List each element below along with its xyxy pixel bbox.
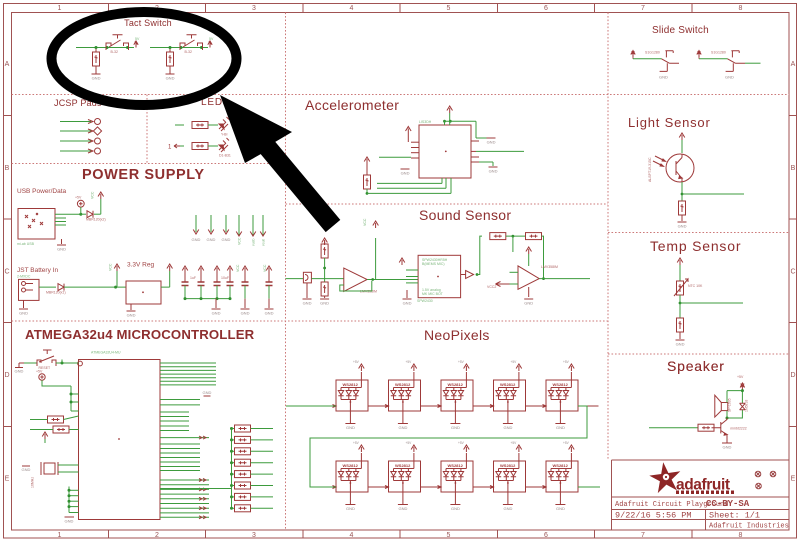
svg-text:vout: vout: [262, 239, 266, 246]
svg-text:Temp Sensor: Temp Sensor: [650, 238, 741, 254]
svg-text:Tact Switch: Tact Switch: [124, 18, 172, 28]
svg-text:A: A: [791, 61, 796, 68]
svg-text:E: E: [5, 476, 10, 483]
svg-text:B(MEMS MIC): B(MEMS MIC): [422, 262, 445, 266]
svg-text:Light Sensor: Light Sensor: [628, 115, 711, 130]
svg-text:8: 8: [739, 5, 743, 12]
svg-text:ALSPT19-315C: ALSPT19-315C: [648, 157, 652, 182]
svg-text:GND: GND: [723, 445, 732, 450]
svg-text:VCC2: VCC2: [487, 285, 496, 289]
svg-text:7: 7: [641, 532, 645, 539]
svg-text:S1G1280: S1G1280: [645, 51, 660, 55]
svg-text:Sheet: 1/1: Sheet: 1/1: [709, 511, 760, 521]
svg-text:4: 4: [350, 5, 354, 12]
svg-text:Speaker: Speaker: [667, 358, 725, 374]
svg-text:1: 1: [58, 5, 62, 12]
svg-text:4: 4: [350, 532, 354, 539]
svg-text:GND: GND: [65, 519, 74, 524]
svg-text:GND: GND: [15, 369, 24, 374]
svg-text:GND: GND: [222, 237, 231, 242]
svg-text:10uF: 10uF: [221, 276, 229, 280]
svg-text:MBR120(x2): MBR120(x2): [86, 218, 106, 222]
svg-text:NTC 10K: NTC 10K: [688, 284, 703, 288]
svg-text:VCC: VCC: [91, 191, 95, 199]
svg-text:5: 5: [447, 532, 451, 539]
svg-text:SPW2430: SPW2430: [417, 299, 433, 303]
svg-text:5: 5: [447, 5, 451, 12]
svg-text:MK MIC BOT: MK MIC BOT: [422, 292, 444, 296]
svg-text:6: 6: [544, 5, 548, 12]
svg-text:JST Battery In: JST Battery In: [17, 267, 58, 274]
svg-text:B: B: [5, 165, 10, 172]
svg-text:16MHz: 16MHz: [31, 477, 35, 488]
svg-text:1: 1: [58, 532, 62, 539]
svg-text:mi-ab USB: mi-ab USB: [17, 242, 35, 246]
svg-text:GND: GND: [192, 237, 201, 242]
svg-text:USB Power/Data: USB Power/Data: [17, 188, 67, 195]
svg-text:VCC: VCC: [363, 218, 367, 226]
svg-text:Adafruit Industries: Adafruit Industries: [709, 523, 789, 531]
svg-text:VCC: VCC: [236, 264, 240, 272]
svg-text:+5V: +5V: [36, 370, 43, 374]
svg-text:LMV358IM: LMV358IM: [541, 265, 558, 269]
svg-text:3: 3: [252, 532, 256, 539]
svg-text:E: E: [791, 476, 796, 483]
svg-text:GND: GND: [659, 75, 668, 80]
svg-text:POWER SUPPLY: POWER SUPPLY: [82, 167, 205, 183]
svg-text:2-MXDC: 2-MXDC: [17, 275, 31, 279]
svg-text:Y-BI: Y-BI: [221, 133, 228, 137]
svg-text:LIS3DH: LIS3DH: [419, 120, 432, 124]
svg-text:GND: GND: [22, 467, 31, 472]
svg-text:D1-B31: D1-B31: [219, 154, 231, 158]
svg-text:8: 8: [739, 532, 743, 539]
svg-text:2: 2: [155, 532, 159, 539]
svg-text:Sound Sensor: Sound Sensor: [419, 207, 511, 223]
svg-text:VCC: VCC: [263, 264, 267, 272]
svg-text:SP-1605: SP-1605: [728, 398, 732, 412]
svg-text:3.3V Reg: 3.3V Reg: [127, 262, 154, 269]
svg-text:1uF: 1uF: [190, 276, 196, 280]
svg-text:1N5818: 1N5818: [745, 400, 749, 412]
svg-text:A: A: [5, 61, 10, 68]
svg-text:+5V: +5V: [75, 196, 82, 200]
svg-text:GND: GND: [207, 237, 216, 242]
svg-text:5V: 5V: [135, 37, 140, 41]
svg-text:B-32: B-32: [111, 50, 118, 54]
svg-text:C: C: [790, 269, 795, 276]
svg-text:D: D: [4, 372, 9, 379]
svg-text:GND: GND: [725, 75, 734, 80]
svg-text:3: 3: [252, 5, 256, 12]
svg-text:ATMEGA32u4 MICROCONTROLLER: ATMEGA32u4 MICROCONTROLLER: [25, 327, 255, 342]
svg-text:C: C: [4, 269, 9, 276]
svg-text:B: B: [791, 165, 796, 172]
svg-text:Accelerometer: Accelerometer: [305, 97, 399, 113]
svg-text:GND: GND: [203, 390, 212, 395]
svg-text:VCC: VCC: [238, 237, 242, 245]
svg-text:vusb: vusb: [252, 239, 256, 246]
svg-text:D: D: [790, 372, 795, 379]
svg-text:VCC: VCC: [109, 263, 113, 271]
svg-text:Slide Switch: Slide Switch: [652, 25, 709, 36]
svg-text:6: 6: [544, 532, 548, 539]
svg-text:MBR120(x1): MBR120(x1): [46, 291, 66, 295]
svg-text:mmbt2222: mmbt2222: [730, 427, 747, 431]
svg-text:+5V: +5V: [737, 375, 744, 379]
svg-text:ATMEGA32U4-MU: ATMEGA32U4-MU: [91, 351, 121, 355]
svg-text:CC-BY-SA: CC-BY-SA: [706, 499, 750, 509]
svg-text:9/22/16 5:56 PM: 9/22/16 5:56 PM: [615, 511, 692, 521]
svg-text:S1G1280: S1G1280: [711, 51, 726, 55]
svg-text:7: 7: [641, 5, 645, 12]
svg-text:NeoPixels: NeoPixels: [424, 327, 490, 343]
